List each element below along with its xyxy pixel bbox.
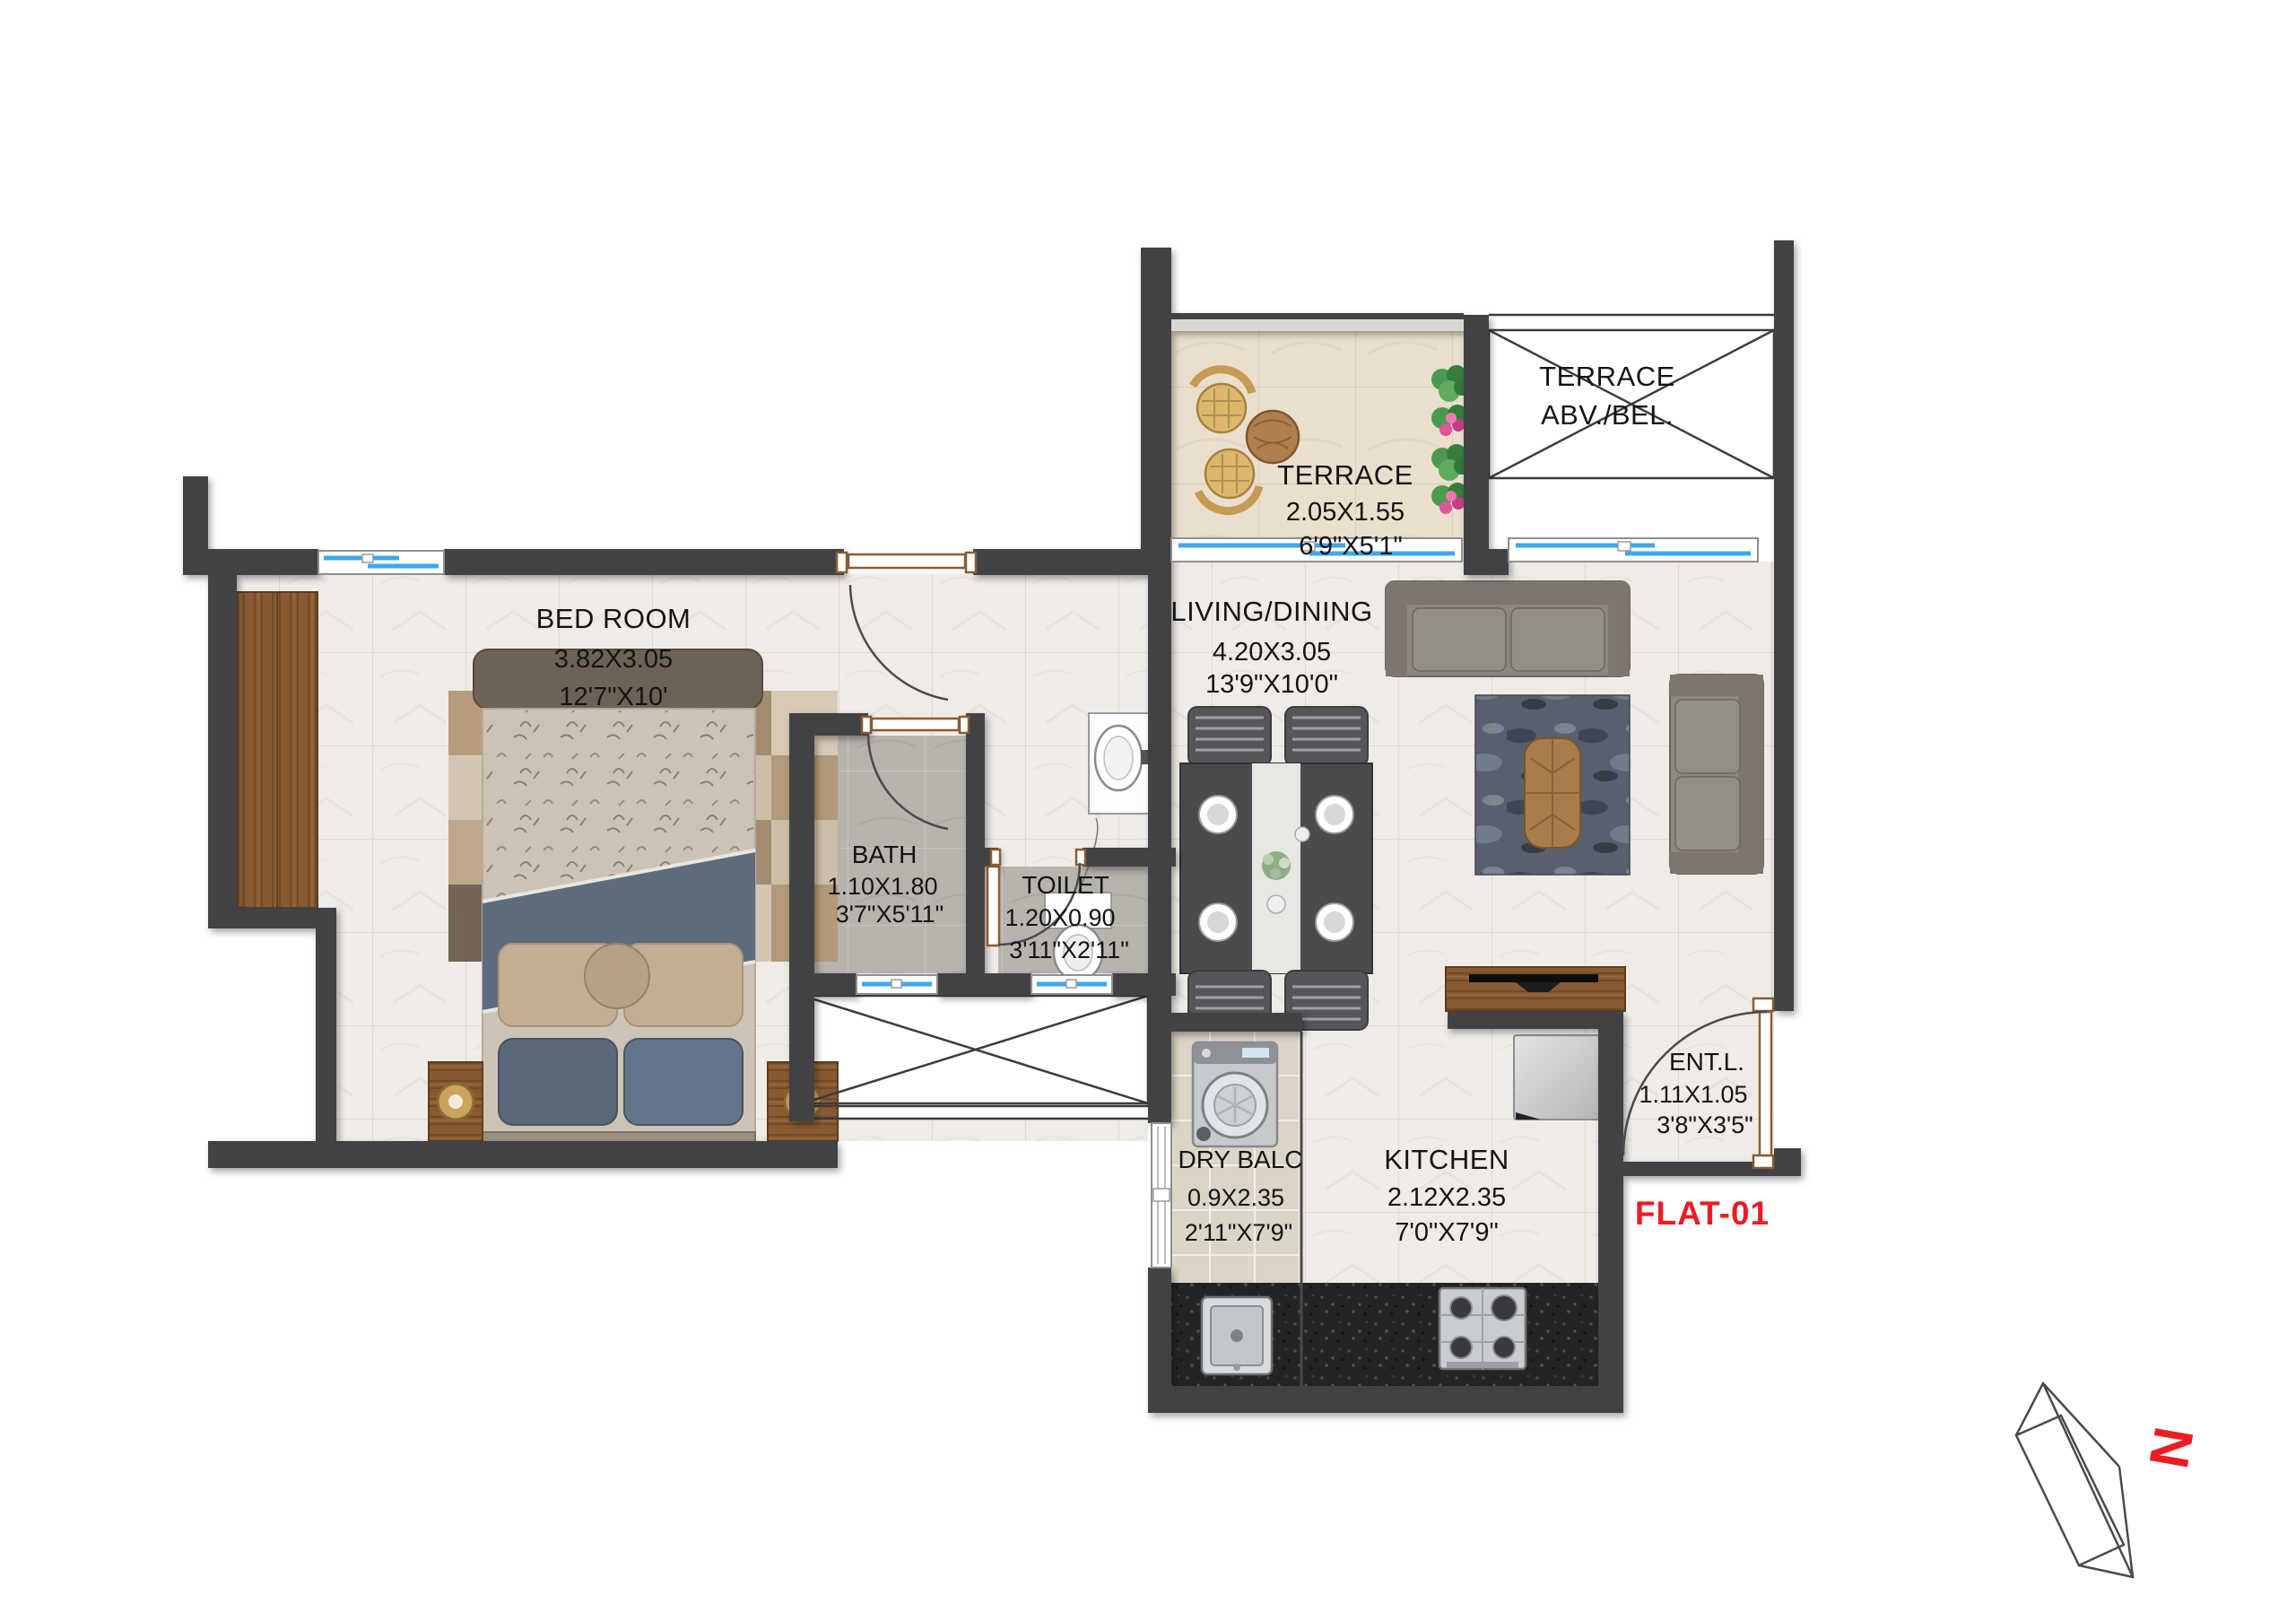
- living-dim-m: 4.20X3.05: [1213, 638, 1331, 667]
- terrace-table: [1247, 411, 1299, 463]
- toilet-label: TOILET: [1022, 871, 1109, 899]
- toilet-dim-ft: 3'11"X2'11": [1009, 937, 1129, 963]
- dry-balcony-side-window: [1152, 1123, 1171, 1268]
- bedroom-dim-m: 3.82X3.05: [554, 645, 673, 674]
- compass-upper-kite: [2016, 1383, 2119, 1467]
- terrace-abv-label-1: TERRACE: [1539, 361, 1675, 392]
- floor-plan-drawing: BED ROOM 3.82X3.05 12'7"X10' TERRACE 2.0…: [0, 0, 2296, 1621]
- duct-floor: [803, 996, 1148, 1120]
- gas-hob: [1439, 1288, 1526, 1369]
- terrace-dim-ft: 6'9"X5'1": [1299, 532, 1403, 561]
- toilet-dim-m: 1.20X0.90: [1004, 904, 1115, 931]
- nightstand-left: [429, 1062, 483, 1141]
- kitchen-dim-m: 2.12X2.35: [1387, 1183, 1506, 1212]
- toilet-window: [1031, 975, 1112, 994]
- bath-dim-m: 1.10X1.80: [827, 873, 937, 900]
- refrigerator: [1514, 1035, 1600, 1120]
- bath-window: [857, 975, 937, 994]
- kitchen-label: KITCHEN: [1384, 1144, 1509, 1175]
- drybalc-dim-m: 0.9X2.35: [1187, 1184, 1284, 1211]
- terrace-abv-label-2: ABV./BEL.: [1541, 399, 1674, 431]
- tv-console: [1446, 967, 1625, 1011]
- compass-rectangle: [2016, 1416, 2124, 1565]
- drybalc-dim-ft: 2'11"X7'9": [1185, 1219, 1293, 1246]
- living-dim-ft: 13'9"X10'0": [1205, 670, 1338, 699]
- bedroom-dim-ft: 12'7"X10': [559, 683, 667, 711]
- terrace-dim-m: 2.05X1.55: [1286, 498, 1405, 527]
- living-label: LIVING/DINING: [1170, 596, 1372, 627]
- dining-chair: [1285, 707, 1368, 766]
- bedroom-label: BED ROOM: [536, 603, 691, 634]
- terrace-abv-window: [1509, 538, 1758, 562]
- bath-label: BATH: [852, 841, 918, 868]
- entl-label: ENT.L.: [1669, 1048, 1744, 1076]
- compass-axis: [2043, 1383, 2133, 1577]
- entl-dim-ft: 3'8"X3'5": [1657, 1111, 1753, 1138]
- drybalc-label: DRY BALC: [1178, 1146, 1302, 1173]
- washing-machine: [1193, 1042, 1277, 1146]
- kitchen-dim-ft: 7'0"X7'9": [1395, 1218, 1499, 1247]
- dining-chair: [1188, 707, 1271, 766]
- bedroom-window: [318, 551, 444, 574]
- north-compass: N: [2016, 1383, 2205, 1577]
- tv-icon: [1469, 974, 1598, 982]
- sofa-two-seater: [1670, 675, 1763, 874]
- bath-dim-ft: 3'7"X5'11": [836, 901, 944, 928]
- flat-number-label: FLAT-01: [1635, 1195, 1770, 1232]
- kitchen-sink: [1202, 1297, 1272, 1374]
- entl-dim-m: 1.11X1.05: [1639, 1081, 1747, 1108]
- terrace-label: TERRACE: [1277, 459, 1413, 491]
- wash-basin: [1089, 713, 1150, 814]
- double-bed: [474, 649, 762, 1154]
- terrace-floor: [1171, 330, 1464, 562]
- compass-north-label: N: [2136, 1423, 2205, 1473]
- sofa-three-seater: [1386, 581, 1630, 676]
- floor-plan-page: BED ROOM 3.82X3.05 12'7"X10' TERRACE 2.0…: [0, 0, 2296, 1621]
- coffee-table: [1525, 738, 1580, 848]
- terrace-abv-bel-box: [1489, 315, 1774, 478]
